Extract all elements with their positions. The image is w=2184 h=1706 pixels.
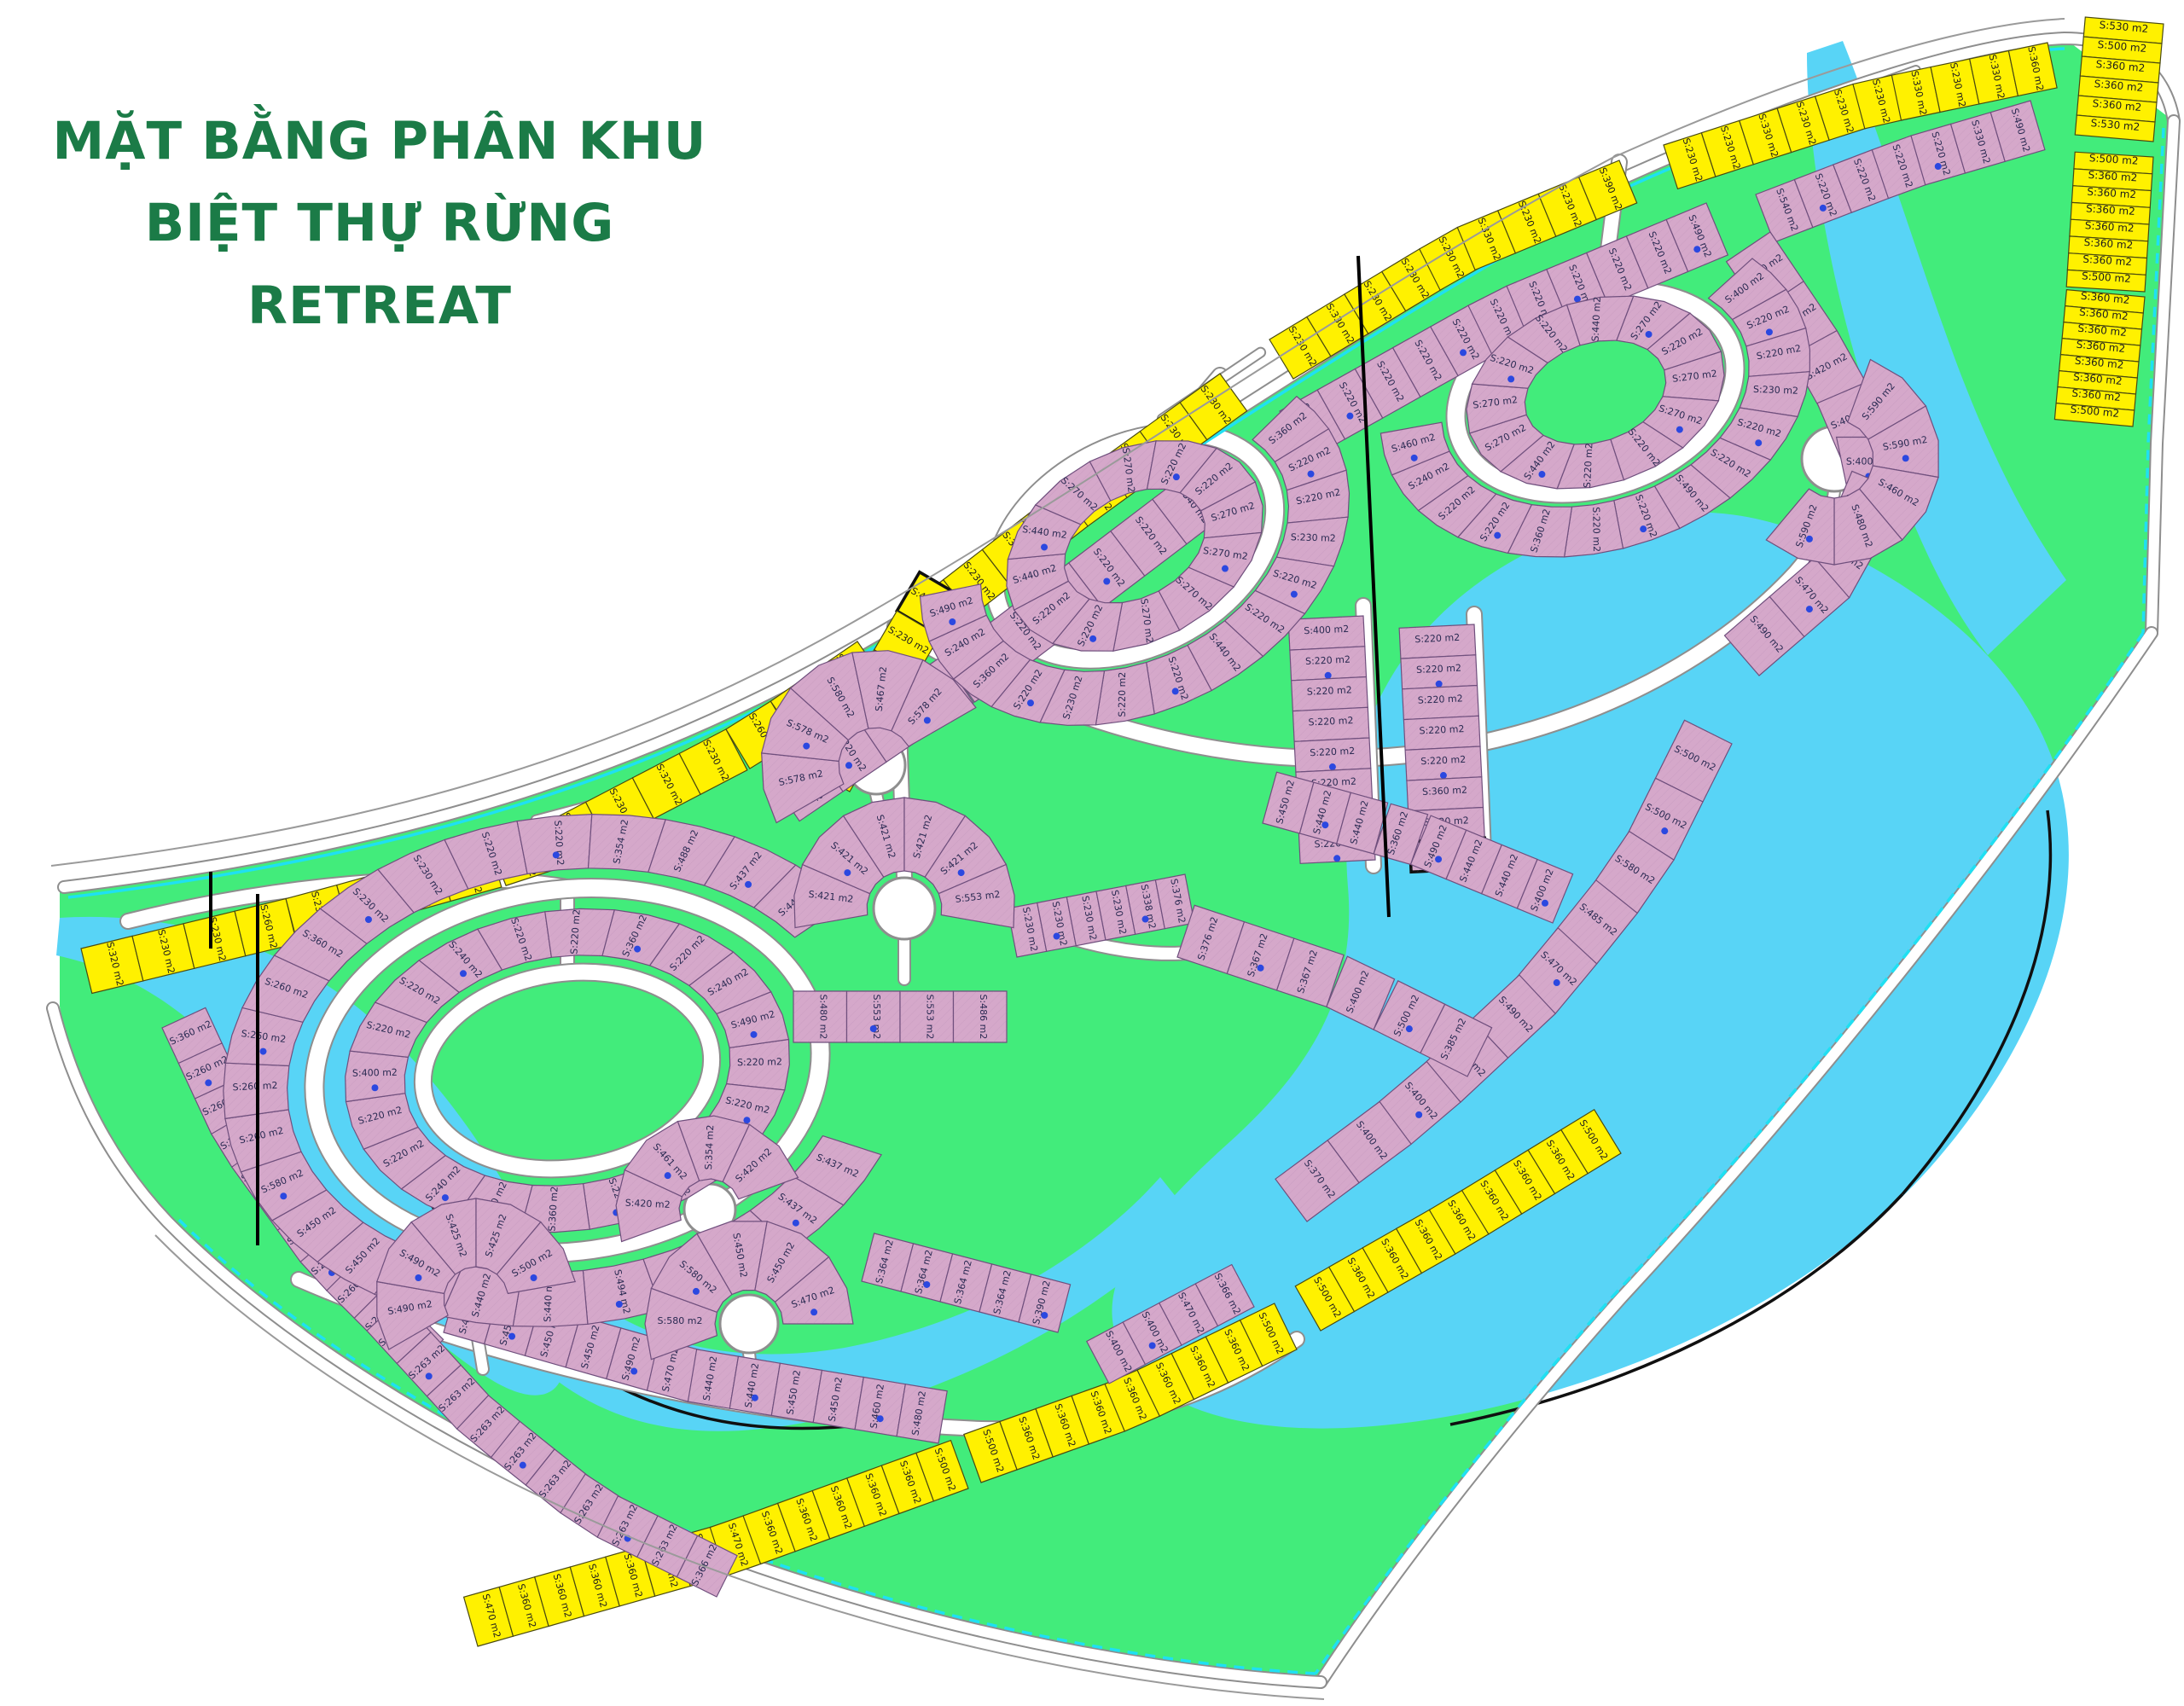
lot-marker-dot	[752, 1395, 758, 1401]
lot-hatch	[346, 1051, 409, 1101]
plan-title-line1: MẶT BẰNG PHÂN KHU	[47, 101, 712, 183]
lot-marker-dot	[1820, 205, 1827, 212]
lot-marker-dot	[508, 1333, 515, 1340]
lot-marker-dot	[1435, 856, 1442, 862]
lot-marker-dot	[259, 1048, 266, 1055]
cul-de-sac	[874, 878, 935, 939]
lot-hatch	[954, 991, 1008, 1042]
lot-marker-dot	[616, 1301, 623, 1308]
lot-marker-dot	[1308, 471, 1315, 478]
lot-marker-dot	[630, 1368, 637, 1375]
site-plan-page: S:320 m2S:230 m2S:230 m2S:260 m2S:230 m2…	[0, 0, 2184, 1706]
lot-marker-dot	[1325, 672, 1332, 679]
lot-marker-dot	[1494, 532, 1501, 539]
lot-hatch	[847, 991, 901, 1042]
lot-marker-dot	[743, 1117, 750, 1123]
lot-marker-dot	[1806, 536, 1813, 543]
lot-hatch	[1565, 501, 1623, 557]
lot-marker-dot	[1258, 965, 1264, 972]
lot-marker-dot	[1149, 1343, 1156, 1349]
lot-hatch	[793, 991, 847, 1042]
lot-marker-dot	[1142, 916, 1149, 923]
lot-marker-dot	[531, 1274, 537, 1281]
lot-marker-dot	[870, 1025, 877, 1032]
lot-marker-dot	[1460, 349, 1467, 356]
lot-marker-dot	[665, 1172, 671, 1179]
lot-marker-dot	[1333, 855, 1340, 862]
lot-hatch	[1407, 777, 1484, 811]
lot-marker-dot	[1089, 635, 1096, 642]
lot-hatch	[517, 815, 592, 874]
lot-marker-dot	[1646, 331, 1653, 338]
lot-marker-dot	[1806, 606, 1813, 612]
lot-marker-dot	[1041, 543, 1048, 550]
lot-hatch	[1292, 677, 1368, 711]
lot-marker-dot	[1902, 455, 1909, 461]
lot-marker-dot	[1436, 681, 1443, 688]
lot-marker-dot	[1172, 688, 1179, 694]
lot-marker-dot	[1507, 375, 1514, 382]
lot-marker-dot	[1661, 827, 1668, 834]
lot-marker-dot	[1346, 413, 1353, 420]
lot-marker-dot	[745, 881, 752, 888]
lot-marker-dot	[810, 1309, 817, 1315]
lot-marker-dot	[845, 762, 852, 769]
lot-hatch	[1292, 707, 1369, 741]
lot-marker-dot	[1755, 439, 1762, 446]
lot-hatch	[1399, 624, 1476, 659]
plan-title: MẶT BẰNG PHÂN KHU BIỆT THỰ RỪNG RETREAT	[47, 101, 712, 347]
lot-marker-dot	[1027, 699, 1034, 706]
lot-marker-dot	[1693, 246, 1700, 252]
lot-marker-dot	[1173, 473, 1180, 480]
lot-marker-dot	[1640, 525, 1647, 532]
lot-marker-dot	[365, 916, 372, 923]
cul-de-sac	[720, 1295, 778, 1353]
lot-marker-dot	[1041, 1312, 1048, 1319]
lot-marker-dot	[949, 618, 955, 625]
lot-marker-dot	[924, 717, 931, 723]
lot-marker-dot	[1415, 1111, 1422, 1118]
lot-marker-dot	[877, 1415, 884, 1422]
lot-marker-dot	[1291, 591, 1298, 598]
lot-marker-dot	[1054, 933, 1060, 940]
lot-marker-dot	[1329, 763, 1336, 770]
lot-marker-dot	[520, 1462, 526, 1469]
lot-marker-dot	[553, 851, 560, 858]
lot-hatch	[897, 1384, 947, 1443]
lot-marker-dot	[923, 1281, 930, 1288]
lot-marker-dot	[693, 1288, 700, 1295]
lot-hatch	[1403, 716, 1480, 750]
lot-marker-dot	[1222, 566, 1228, 572]
lot-marker-dot	[1538, 471, 1545, 478]
lot-marker-dot	[1542, 900, 1548, 907]
lot-marker-dot	[844, 869, 851, 876]
lot-marker-dot	[803, 743, 810, 750]
lot-marker-dot	[442, 1194, 449, 1201]
lot-marker-dot	[280, 1192, 287, 1199]
lot-marker-dot	[415, 1274, 421, 1281]
lot-marker-dot	[1554, 979, 1560, 986]
lot-marker-dot	[1766, 328, 1773, 335]
lot-marker-dot	[1935, 163, 1942, 170]
lot-marker-dot	[371, 1084, 378, 1091]
lot-marker-dot	[1676, 426, 1683, 433]
lot-marker-dot	[1406, 1025, 1413, 1032]
lot-marker-dot	[958, 869, 965, 876]
plan-title-line2: BIỆT THỰ RỪNG RETREAT	[47, 183, 712, 347]
lot-hatch	[900, 991, 954, 1042]
lot-marker-dot	[634, 946, 641, 953]
lot-marker-dot	[1103, 578, 1110, 585]
lot-marker-dot	[793, 1220, 799, 1227]
lot-hatch	[1288, 616, 1365, 650]
lot-marker-dot	[426, 1372, 433, 1379]
lot-marker-dot	[751, 1031, 758, 1038]
lot-marker-dot	[1440, 772, 1447, 779]
lot-marker-dot	[205, 1079, 212, 1086]
lot-marker-dot	[460, 970, 467, 977]
lot-marker-dot	[1411, 455, 1418, 461]
lot-hatch	[1403, 686, 1479, 720]
lot-marker-dot	[1321, 821, 1328, 828]
